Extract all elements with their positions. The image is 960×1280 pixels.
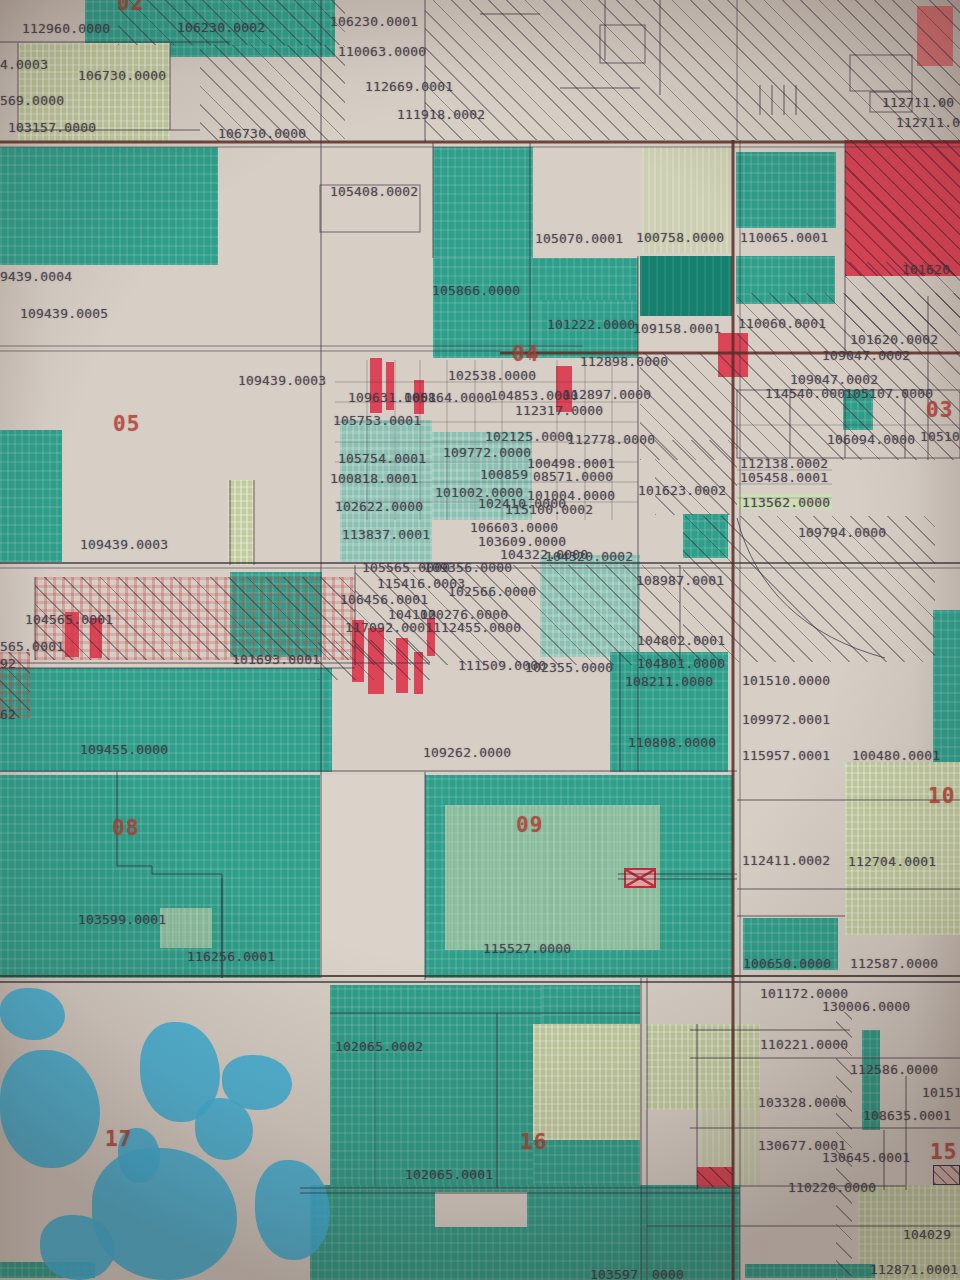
parcel-id-label: 108635.0001 [863, 1109, 951, 1122]
parcel-id-label: 105864.0000 [404, 391, 492, 404]
parcel-id-label: 112960.0000 [22, 22, 110, 35]
section-number-label: 08 [112, 818, 139, 839]
parcel-region [845, 140, 960, 276]
section-number-label: 05 [113, 414, 140, 435]
parcel-id-label: 112138.0002 [740, 457, 828, 470]
parcel-id-label: 4.0003 [0, 58, 48, 71]
parcel-region [0, 147, 218, 265]
parcel-id-label: 101620 [902, 263, 950, 276]
parcel-region [92, 1148, 237, 1280]
parcel-id-label: 102125.0000 [485, 430, 573, 443]
parcel-id-label: 109439.0003 [80, 538, 168, 551]
parcel-id-label: 100650.0000 [743, 957, 831, 970]
parcel-map-photo: 112960.0000106230.00024.0003106730.00005… [0, 0, 960, 1280]
parcel-region [160, 908, 212, 948]
parcel-id-label: 106094.0000 [827, 433, 915, 446]
parcel-id-label: 08571.0000 [533, 470, 613, 483]
parcel-id-label: 109158.0001 [633, 322, 721, 335]
parcel-id-label: 109356.0000 [424, 561, 512, 574]
parcel-id-label: 103597 [590, 1268, 638, 1280]
parcel-id-label: 102622.0000 [335, 500, 423, 513]
parcel-id-label: 106730.0000 [218, 127, 306, 140]
parcel-id-label: 102538.0000 [448, 369, 536, 382]
parcel-id-label: 113562.0000 [742, 496, 830, 509]
parcel-id-label: 102566.0000 [448, 585, 536, 598]
parcel-region [195, 1098, 253, 1160]
parcel-id-label: 101222.0000 [547, 318, 635, 331]
parcel-id-label: 104801.0000 [637, 657, 725, 670]
parcel-id-label: 106230.0002 [177, 21, 265, 34]
parcel-id-label: 109047.0002 [790, 373, 878, 386]
parcel-region [542, 985, 640, 1025]
parcel-id-label: 102355.0000 [525, 661, 613, 674]
parcel-id-label: 112317.0000 [515, 404, 603, 417]
parcel-id-label: 109047.0002 [822, 349, 910, 362]
parcel-id-label: 105070.0001 [535, 232, 623, 245]
parcel-region [0, 430, 62, 562]
parcel-id-label: 109772.0000 [443, 446, 531, 459]
parcel-id-label: 109455.0000 [80, 743, 168, 756]
parcel-id-label: 109439.0005 [20, 307, 108, 320]
section-number-label: 03 [926, 400, 953, 421]
parcel-id-label: 112897.0000 [563, 388, 651, 401]
parcel-id-label: 100758.0000 [636, 231, 724, 244]
parcel-id-label: 9439.0004 [0, 270, 72, 283]
parcel-id-label: 110808.0000 [628, 736, 716, 749]
parcel-id-label: 104320.0002 [545, 550, 633, 563]
parcel-id-label: 106603.0000 [470, 521, 558, 534]
parcel-region [640, 256, 732, 316]
parcel-id-label: 114540.000 [765, 387, 845, 400]
parcel-id-label: 101693.0001 [232, 653, 320, 666]
parcel-region [655, 440, 737, 515]
parcel-region [320, 775, 425, 978]
parcel-id-label: 565.0001 [0, 640, 64, 653]
parcel-id-label: 112669.0001 [365, 80, 453, 93]
parcel-id-label: 109262.0000 [423, 746, 511, 759]
parcel-id-label: 104565.0001 [25, 613, 113, 626]
parcel-region [697, 1167, 733, 1187]
section-number-label: 02 [117, 0, 144, 14]
parcel-id-label: 101623.0002 [638, 484, 726, 497]
parcel-id-label: 112898.0000 [580, 355, 668, 368]
parcel-id-label: 100859 [480, 468, 528, 481]
parcel-id-label: 115527.0000 [483, 942, 571, 955]
section-number-label: 04 [512, 344, 539, 365]
section-number-label: 09 [516, 815, 543, 836]
parcel-id-label: 108211.0000 [625, 675, 713, 688]
parcel-id-label: 112704.0001 [848, 855, 936, 868]
parcel-region [745, 1264, 875, 1278]
parcel-id-label: 62 [0, 708, 16, 721]
parcel-id-label: 105458.0001 [740, 471, 828, 484]
parcel-id-label: 105866.0000 [432, 284, 520, 297]
parcel-id-label: 10151 [922, 1086, 960, 1099]
parcel-id-label: 92 [0, 657, 16, 670]
parcel-id-label: 111918.0002 [397, 108, 485, 121]
parcel-id-label: 106730.0000 [78, 69, 166, 82]
parcel-id-label: 115100.0002 [505, 503, 593, 516]
parcel-id-label: 105753.0001 [333, 414, 421, 427]
parcel-id-label: 10510 [920, 430, 960, 443]
parcel-region [435, 1192, 527, 1227]
parcel-region [0, 1050, 100, 1168]
parcel-region [433, 147, 533, 258]
parcel-id-label: 117092.0001 [345, 621, 433, 634]
parcel-id-label: 112711.0 [896, 116, 960, 129]
parcel-id-label: 101620.0002 [850, 333, 938, 346]
parcel-region [736, 152, 836, 228]
parcel-id-label: 130006.0000 [822, 1000, 910, 1013]
parcel-region [228, 480, 254, 565]
parcel-region [425, 0, 960, 140]
parcel-id-label: 104802.0001 [637, 634, 725, 647]
parcel-id-label: 569.0000 [0, 94, 64, 107]
section-number-label: 16 [520, 1132, 547, 1153]
parcel-id-label: 100480.0001 [852, 749, 940, 762]
parcel-region [255, 1160, 330, 1260]
parcel-id-label: 105107.0000 [845, 387, 933, 400]
parcel-id-label: 0000 [652, 1268, 684, 1280]
parcel-id-label: 102065.0002 [335, 1040, 423, 1053]
parcel-id-label: 112778.0000 [567, 433, 655, 446]
parcel-id-label: 104029 [903, 1228, 951, 1241]
parcel-region [533, 1024, 640, 1140]
parcel-id-label: 110221.0000 [760, 1038, 848, 1051]
parcel-id-label: 101510.0000 [742, 674, 830, 687]
parcel-id-label: 106230.0001 [330, 15, 418, 28]
parcel-id-label: 110060.0001 [738, 317, 826, 330]
parcel-region [0, 988, 65, 1040]
section-number-label: 15 [930, 1142, 957, 1163]
parcel-region [624, 868, 656, 888]
parcel-id-label: 116256.0001 [187, 950, 275, 963]
parcel-id-label: 105754.0001 [338, 452, 426, 465]
parcel-id-label: 102065.0001 [405, 1168, 493, 1181]
section-number-label: 10 [928, 786, 955, 807]
parcel-id-label: 103328.0000 [758, 1096, 846, 1109]
parcel-id-label: 112711.00 [882, 96, 954, 109]
parcel-id-label: 112411.0002 [742, 854, 830, 867]
parcel-id-label: 103157.0000 [8, 121, 96, 134]
parcel-id-label: 105408.0002 [330, 185, 418, 198]
parcel-region [933, 1165, 960, 1185]
parcel-id-label: 110063.0000 [338, 45, 426, 58]
parcel-id-label: 113837.0001 [342, 528, 430, 541]
section-number-label: 17 [105, 1129, 132, 1150]
parcel-id-label: 112871.0001 [870, 1263, 958, 1276]
parcel-id-label: 112587.0000 [850, 957, 938, 970]
parcel-id-label: 112586.0000 [850, 1063, 938, 1076]
parcel-id-label: 103599.0001 [78, 913, 166, 926]
parcel-id-label: 130645.0001 [822, 1151, 910, 1164]
parcel-region [40, 1215, 115, 1280]
parcel-id-label: 112455.0000 [433, 621, 521, 634]
parcel-id-label: 115957.0001 [742, 749, 830, 762]
parcel-id-label: 108987.0001 [636, 574, 724, 587]
parcel-id-label: 109794.0000 [798, 526, 886, 539]
parcel-region [318, 640, 430, 680]
parcel-id-label: 110220.0000 [788, 1181, 876, 1194]
parcel-id-label: 109972.0001 [742, 713, 830, 726]
parcel-id-label: 100818.0001 [330, 472, 418, 485]
parcel-id-label: 106456.0001 [340, 593, 428, 606]
parcel-id-label: 109439.0003 [238, 374, 326, 387]
parcel-id-label: 110065.0001 [740, 231, 828, 244]
parcel-region [330, 985, 542, 1188]
